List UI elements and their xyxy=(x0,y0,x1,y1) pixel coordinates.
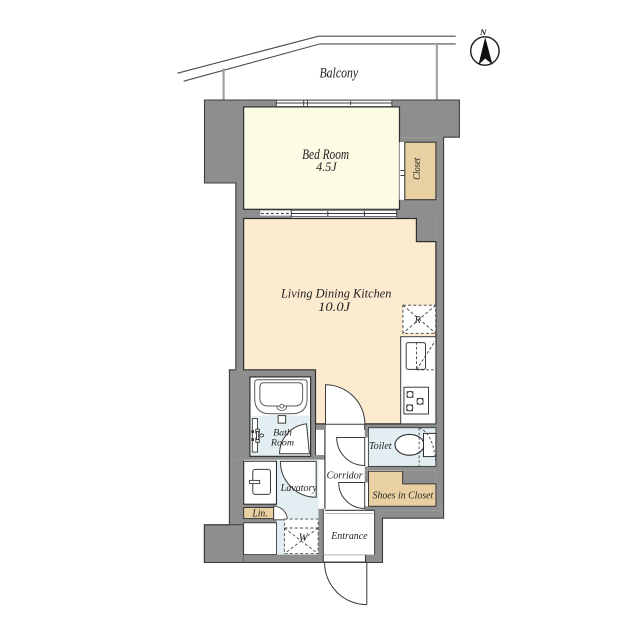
svg-text:Entrance: Entrance xyxy=(330,531,368,542)
svg-text:Living Dining Kitchen: Living Dining Kitchen xyxy=(280,287,391,301)
svg-text:Lavatory: Lavatory xyxy=(280,482,317,494)
svg-text:Toilet: Toilet xyxy=(369,440,392,452)
svg-text:Room: Room xyxy=(270,439,294,449)
svg-text:Lin.: Lin. xyxy=(251,508,267,520)
svg-text:Balcony: Balcony xyxy=(319,65,358,81)
svg-text:W: W xyxy=(299,532,309,544)
svg-text:Shoes in Closet: Shoes in Closet xyxy=(373,490,435,502)
svg-text:4.5J: 4.5J xyxy=(316,160,338,174)
svg-text:R: R xyxy=(414,315,422,326)
svg-text:Bath: Bath xyxy=(273,429,292,439)
svg-text:N: N xyxy=(479,27,487,37)
svg-text:Closet: Closet xyxy=(412,158,423,180)
svg-text:10.0J: 10.0J xyxy=(318,300,351,314)
svg-text:Corridor: Corridor xyxy=(327,470,364,482)
